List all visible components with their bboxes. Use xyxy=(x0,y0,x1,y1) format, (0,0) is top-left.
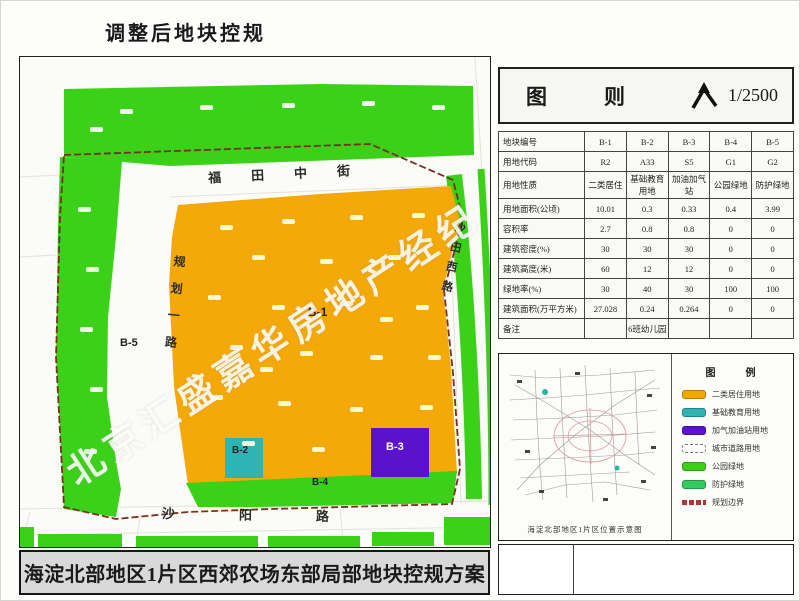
legend-label: 公园绿地 xyxy=(712,461,744,472)
spec-row-label: 绿地率(%) xyxy=(499,279,585,299)
spec-row-label: 用地面积(公顷) xyxy=(499,199,585,219)
spec-cell-value: 0.24 xyxy=(626,299,668,319)
legend-item: 规划边界 xyxy=(682,497,789,508)
title-block-empty xyxy=(498,544,794,595)
spec-cell-value: 0.8 xyxy=(626,219,668,239)
spec-cell-value: 30 xyxy=(668,239,710,259)
spec-cell-value: 0 xyxy=(710,239,752,259)
spec-cell-value xyxy=(710,319,752,339)
spec-table-row: 绿地率(%)304030100100 xyxy=(499,279,794,299)
spec-cell-value: R2 xyxy=(585,152,627,172)
legend-list-wrap: 图 例 二类居住用地基础教育用地加气加油站用地城市道路用地公园绿地防护绿地规划边… xyxy=(672,354,793,540)
street-label-shayang: 沙阳路 xyxy=(162,503,393,526)
plot-label-b3: B-3 xyxy=(386,441,404,453)
legend-label: 加气加油站用地 xyxy=(712,425,768,436)
spec-cell-value: 0 xyxy=(710,219,752,239)
spec-cell-value: 0 xyxy=(710,259,752,279)
spec-cell-value: 10.01 xyxy=(585,199,627,219)
legend-label: 基础教育用地 xyxy=(712,407,760,418)
spec-row-label: 容积率 xyxy=(499,219,585,239)
north-arrow-icon xyxy=(686,81,722,111)
sheet-header-box: 图 则 1/2500 xyxy=(498,67,794,124)
spec-table-row: 用地代码R2A33S5G1G2 xyxy=(499,152,794,172)
spec-row-label: 建筑密度(%) xyxy=(499,239,585,259)
spec-table-row: 用地面积(公顷)10.010.30.330.43.99 xyxy=(499,199,794,219)
legend-swatch xyxy=(682,444,706,453)
spec-cell-value: 12 xyxy=(626,259,668,279)
spec-cell-value: 60 xyxy=(585,259,627,279)
legend-label: 防护绿地 xyxy=(712,479,744,490)
location-minimap xyxy=(505,360,665,510)
spec-cell-value: G2 xyxy=(752,152,794,172)
legend-label: 城市道路用地 xyxy=(712,443,760,454)
page-title: 调整后地块控规 xyxy=(105,17,266,46)
spec-cell-value: 基础教育用地 xyxy=(626,172,668,199)
spec-cell-value: 0.33 xyxy=(668,199,710,219)
spec-cell-value xyxy=(585,319,627,339)
legend-swatch xyxy=(682,390,706,399)
spec-cell-value: 0.264 xyxy=(668,299,710,319)
spec-row-label: 地块编号 xyxy=(499,132,585,152)
plot-spec-table: 地块编号B-1B-2B-3B-4B-5用地代码R2A33S5G1G2用地性质二类… xyxy=(498,131,794,339)
spec-cell-value: 0 xyxy=(752,259,794,279)
spec-cell-value: 0 xyxy=(752,219,794,239)
legend-swatch xyxy=(682,500,706,505)
plot-label-b4: B-4 xyxy=(312,477,328,488)
spec-cell-value xyxy=(752,319,794,339)
spec-table-row: 地块编号B-1B-2B-3B-4B-5 xyxy=(499,132,794,152)
plan-title-banner: 海淀北部地区1片区西郊农场东部局部地块控规方案 xyxy=(19,550,490,595)
spec-row-label: 建筑面积(万平方米) xyxy=(499,299,585,319)
spec-cell-value: 3.99 xyxy=(752,199,794,219)
spec-cell-value: 30 xyxy=(668,279,710,299)
spec-cell-value: 二类居住 xyxy=(585,172,627,199)
spec-cell-value: 6班幼儿园 xyxy=(626,319,668,339)
spec-cell-value: A33 xyxy=(626,152,668,172)
spec-cell-value: 12 xyxy=(668,259,710,279)
spec-cell-value: 0.8 xyxy=(668,219,710,239)
legend-label: 规划边界 xyxy=(712,497,744,508)
plot-label-b1: B-1 xyxy=(308,305,327,319)
park-green-north xyxy=(64,84,474,166)
legend-box: 海淀北部地区1片区位置示意图 图 例 二类居住用地基础教育用地加气加油站用地城市… xyxy=(498,353,794,541)
spec-table-row: 备注6班幼儿园 xyxy=(499,319,794,339)
spec-cell-value: 30 xyxy=(585,279,627,299)
spec-cell-value: 100 xyxy=(752,279,794,299)
spec-cell-value xyxy=(668,319,710,339)
spec-cell-value: 0 xyxy=(752,239,794,259)
plot-label-b2: B-2 xyxy=(232,445,248,456)
legend-item: 城市道路用地 xyxy=(682,443,789,454)
spec-cell-value: S5 xyxy=(668,152,710,172)
scale-label: 1/2500 xyxy=(728,85,778,106)
spec-cell-value: 加油加气站 xyxy=(668,172,710,199)
legend-item: 防护绿地 xyxy=(682,479,789,490)
spec-cell-value: B-1 xyxy=(585,132,627,152)
plot-label-b5: B-5 xyxy=(120,337,138,349)
spec-cell-value: 公园绿地 xyxy=(710,172,752,199)
legend-swatch xyxy=(682,426,706,435)
spec-cell-value: 0 xyxy=(752,299,794,319)
legend-item: 加气加油站用地 xyxy=(682,425,789,436)
title-block-cell-left xyxy=(499,545,574,594)
spec-cell-value: 27.028 xyxy=(585,299,627,319)
sheet-title: 图 则 xyxy=(526,81,643,111)
spec-row-label: 建筑高度(米) xyxy=(499,259,585,279)
spec-cell-value: 2.7 xyxy=(585,219,627,239)
spec-table-row: 建筑面积(万平方米)27.0280.240.26400 xyxy=(499,299,794,319)
scanned-plan-sheet: 调整后地块控规 xyxy=(0,0,800,601)
legend-item: 基础教育用地 xyxy=(682,407,789,418)
legend-item: 公园绿地 xyxy=(682,461,789,472)
spec-cell-value: G1 xyxy=(710,152,752,172)
spec-row-label: 备注 xyxy=(499,319,585,339)
spec-cell-value: B-3 xyxy=(668,132,710,152)
zoning-map-panel: 福田中街 规划一路 沙田西路 沙阳路 B-1 B-2 B-3 B-4 B-5 北… xyxy=(19,56,491,548)
legend-title: 图 例 xyxy=(682,364,789,379)
spec-cell-value: 防护绿地 xyxy=(752,172,794,199)
spec-table-row: 用地性质二类居住基础教育用地加油加气站公园绿地防护绿地 xyxy=(499,172,794,199)
spec-table-row: 建筑高度(米)60121200 xyxy=(499,259,794,279)
spec-row-label: 用地性质 xyxy=(499,172,585,199)
spec-cell-value: 40 xyxy=(626,279,668,299)
spec-table-row: 建筑密度(%)30303000 xyxy=(499,239,794,259)
spec-cell-value: 30 xyxy=(585,239,627,259)
legend-item: 二类居住用地 xyxy=(682,389,789,400)
zoning-map-drawing xyxy=(20,57,490,547)
legend-swatch xyxy=(682,408,706,417)
spec-cell-value: 0.3 xyxy=(626,199,668,219)
spec-row-label: 用地代码 xyxy=(499,152,585,172)
legend-label: 二类居住用地 xyxy=(712,389,760,400)
spec-cell-value: 0 xyxy=(710,299,752,319)
minimap-caption: 海淀北部地区1片区位置示意图 xyxy=(499,524,671,535)
spec-cell-value: B-5 xyxy=(752,132,794,152)
spec-cell-value: B-2 xyxy=(626,132,668,152)
location-minimap-wrap: 海淀北部地区1片区位置示意图 xyxy=(499,354,672,540)
legend-swatch xyxy=(682,480,706,489)
spec-cell-value: 100 xyxy=(710,279,752,299)
spec-cell-value: 30 xyxy=(626,239,668,259)
legend-swatch xyxy=(682,462,706,471)
title-block-cell-right xyxy=(574,545,793,594)
green-strip-east-edge xyxy=(481,169,490,505)
spec-cell-value: B-4 xyxy=(710,132,752,152)
spec-table-row: 容积率2.70.80.800 xyxy=(499,219,794,239)
spec-cell-value: 0.4 xyxy=(710,199,752,219)
